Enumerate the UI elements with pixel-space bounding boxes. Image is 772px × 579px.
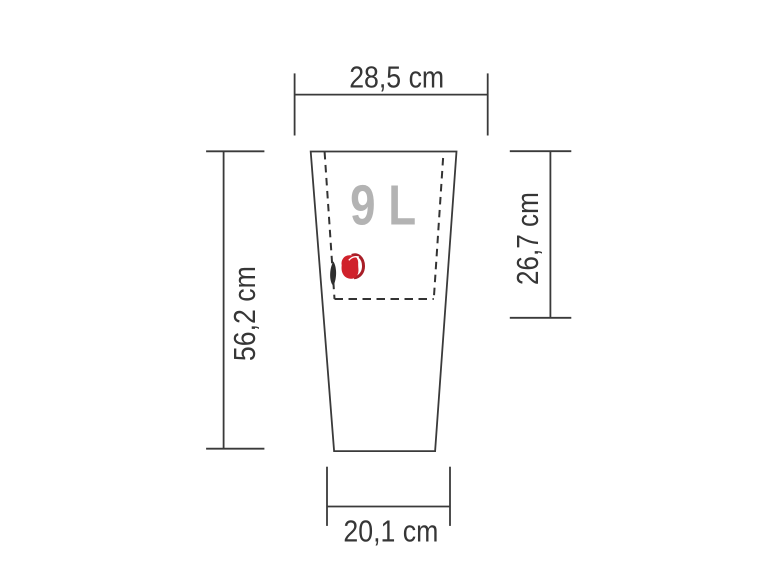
svg-text:56,2 cm: 56,2 cm (227, 266, 262, 361)
svg-text:26,7 cm: 26,7 cm (510, 192, 545, 285)
svg-text:20,1 cm: 20,1 cm (343, 513, 438, 548)
svg-text:9 L: 9 L (350, 174, 416, 238)
svg-text:28,5 cm: 28,5 cm (349, 60, 444, 95)
